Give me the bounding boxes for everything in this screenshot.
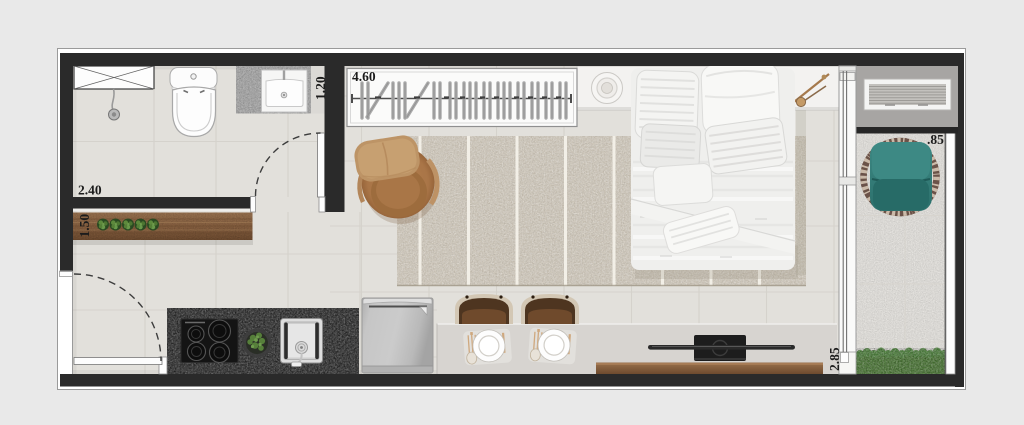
svg-text:1.50: 1.50 <box>77 214 92 238</box>
svg-text:2.40: 2.40 <box>78 183 102 198</box>
svg-text:2.85: 2.85 <box>827 347 842 371</box>
svg-text:1.20: 1.20 <box>313 76 328 100</box>
svg-text:.85: .85 <box>927 132 944 147</box>
svg-text:4.60: 4.60 <box>352 69 376 84</box>
